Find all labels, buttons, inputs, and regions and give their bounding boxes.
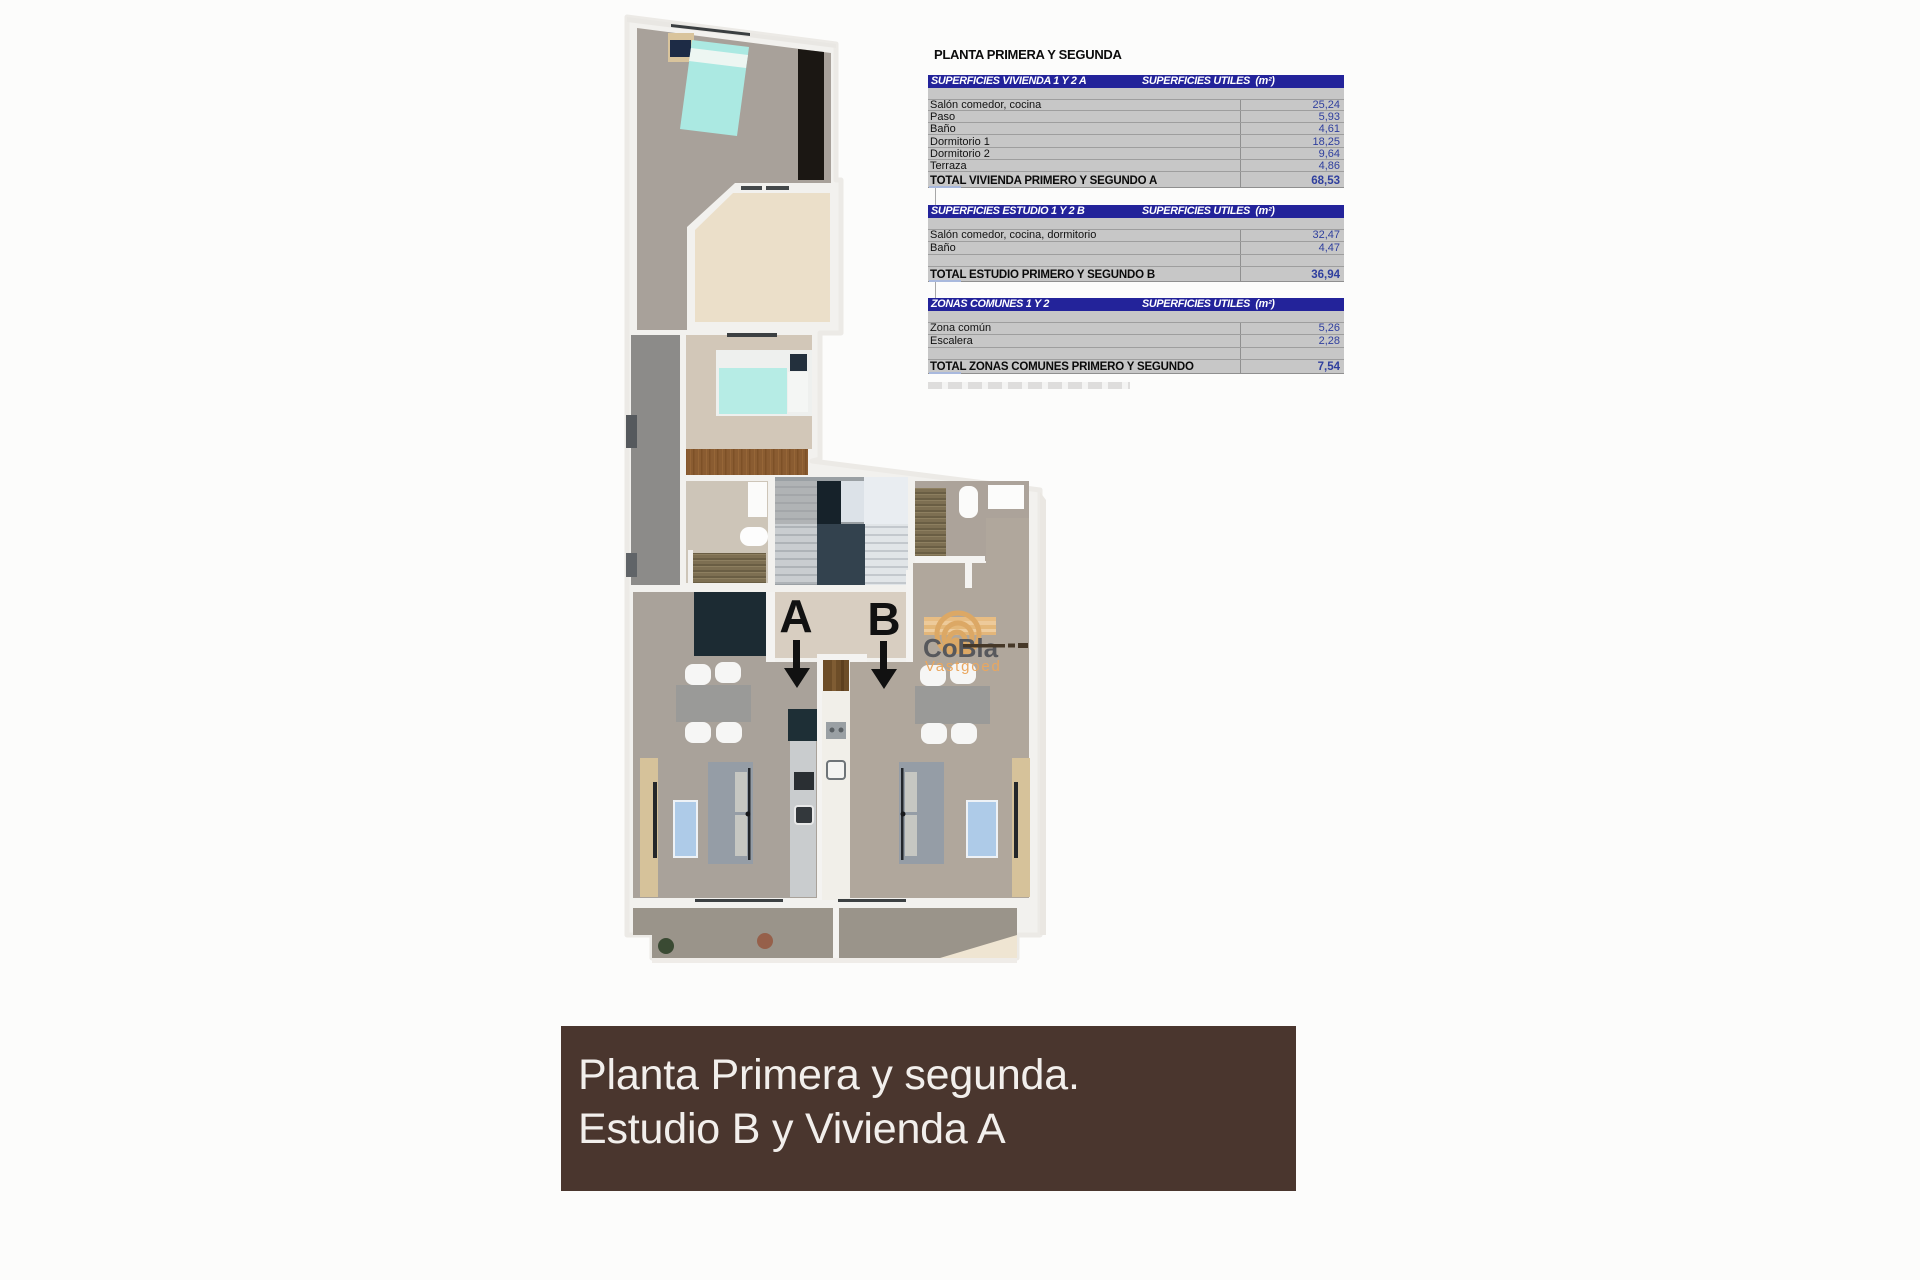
svg-text:Vastgoed: Vastgoed [925, 658, 1002, 675]
svg-text:B: B [867, 593, 900, 645]
svg-text:A: A [779, 590, 812, 642]
